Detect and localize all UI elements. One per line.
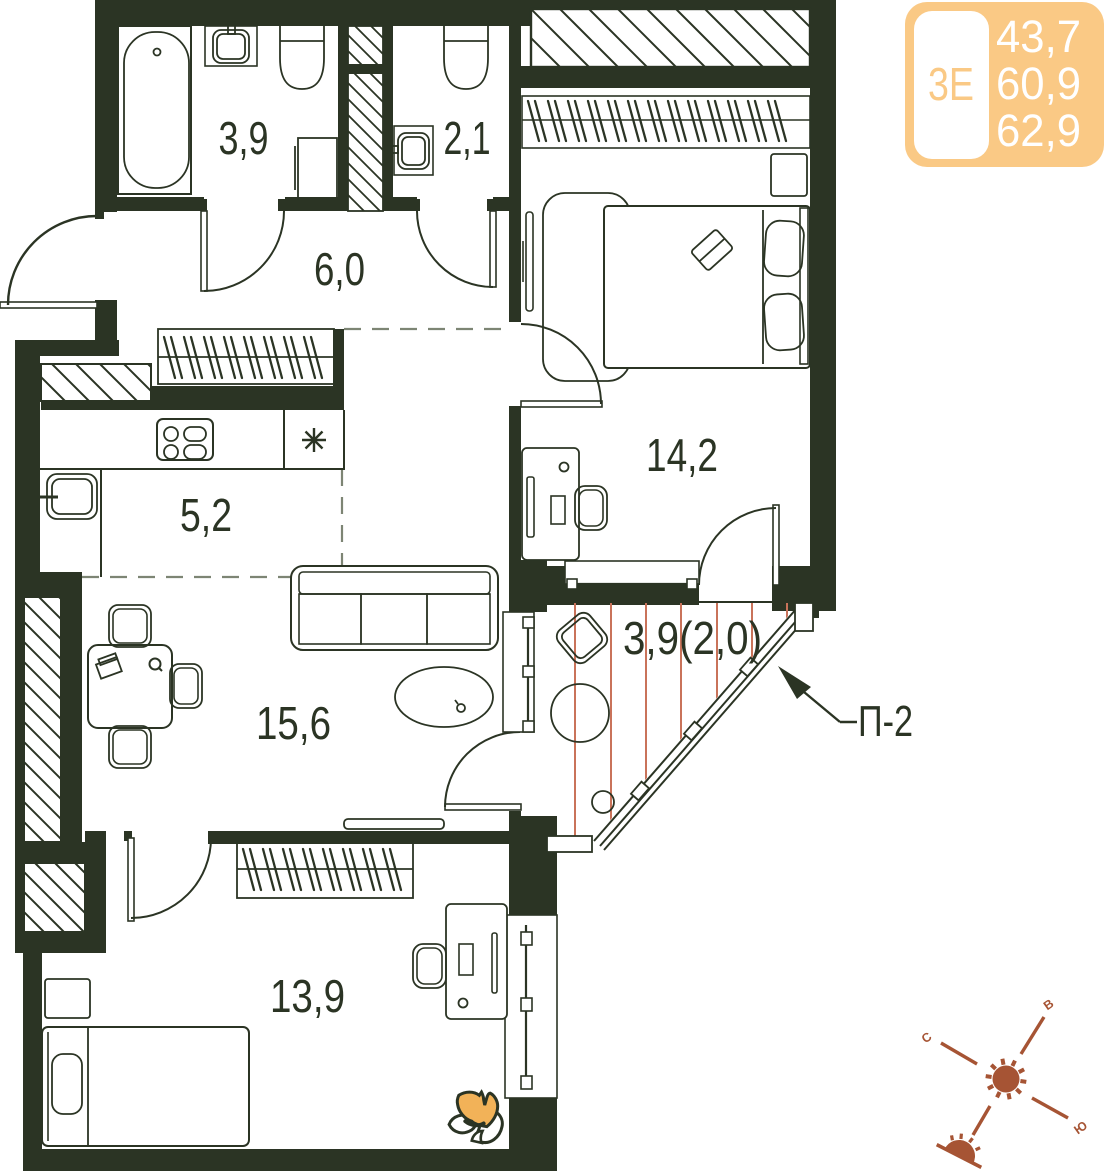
svg-text:В: В (1041, 996, 1056, 1013)
svg-text:Ю: Ю (1071, 1118, 1090, 1137)
svg-text:3Е: 3Е (928, 58, 974, 110)
svg-text:14,2: 14,2 (646, 429, 718, 481)
svg-text:2,1: 2,1 (444, 112, 491, 164)
svg-text:43,7: 43,7 (996, 11, 1081, 62)
svg-text:13,9: 13,9 (270, 970, 345, 1022)
svg-text:П-2: П-2 (858, 697, 913, 746)
svg-text:3,9(2,0): 3,9(2,0) (623, 612, 762, 664)
svg-text:6,0: 6,0 (314, 243, 365, 295)
svg-text:15,6: 15,6 (256, 697, 331, 749)
svg-text:С: С (919, 1029, 934, 1046)
svg-text:5,2: 5,2 (180, 489, 232, 541)
svg-text:3,9: 3,9 (219, 112, 269, 164)
svg-text:60,9: 60,9 (996, 58, 1081, 109)
svg-text:62,9: 62,9 (996, 105, 1081, 156)
